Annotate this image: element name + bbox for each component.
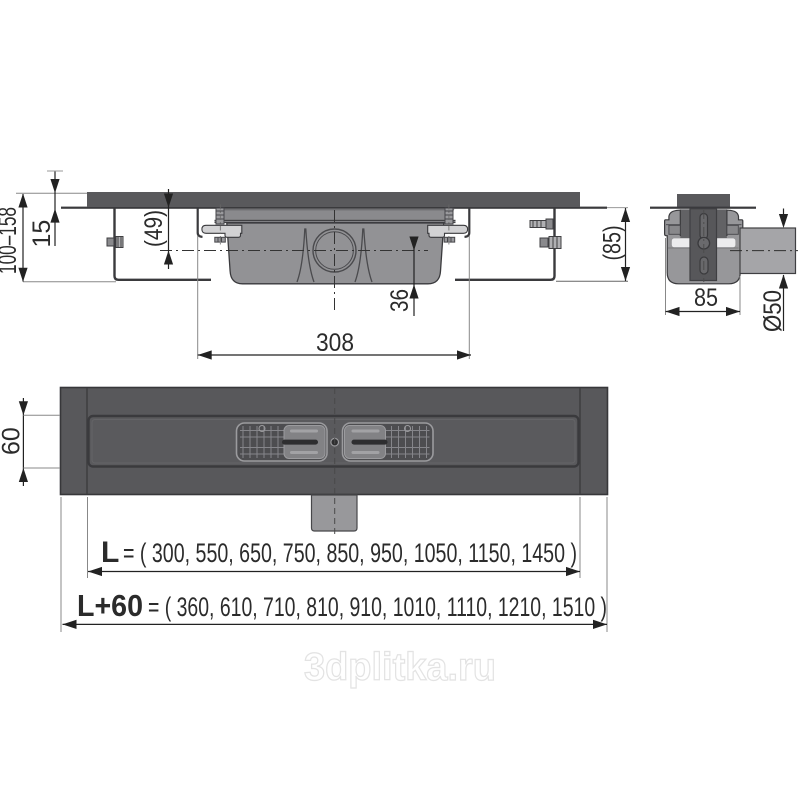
svg-text:60: 60: [0, 427, 26, 455]
svg-text:Ø50: Ø50: [759, 290, 787, 332]
svg-text:(49): (49): [140, 210, 168, 247]
svg-text:L: L: [101, 536, 119, 569]
svg-text:= ( 300, 550, 650, 750, 850, 9: = ( 300, 550, 650, 750, 850, 950, 1050, …: [123, 538, 577, 568]
svg-text:L+60: L+60: [77, 588, 143, 623]
svg-text:15: 15: [28, 220, 56, 248]
svg-text:308: 308: [316, 329, 354, 357]
svg-text:3dplitka.ru: 3dplitka.ru: [304, 646, 496, 689]
svg-text:= ( 360, 610, 710, 810, 910, 1: = ( 360, 610, 710, 810, 910, 1010, 1110,…: [148, 592, 607, 622]
svg-text:(85): (85): [599, 226, 627, 261]
svg-text:100–158: 100–158: [0, 207, 22, 274]
svg-text:85: 85: [694, 284, 718, 312]
svg-text:36: 36: [386, 289, 414, 312]
